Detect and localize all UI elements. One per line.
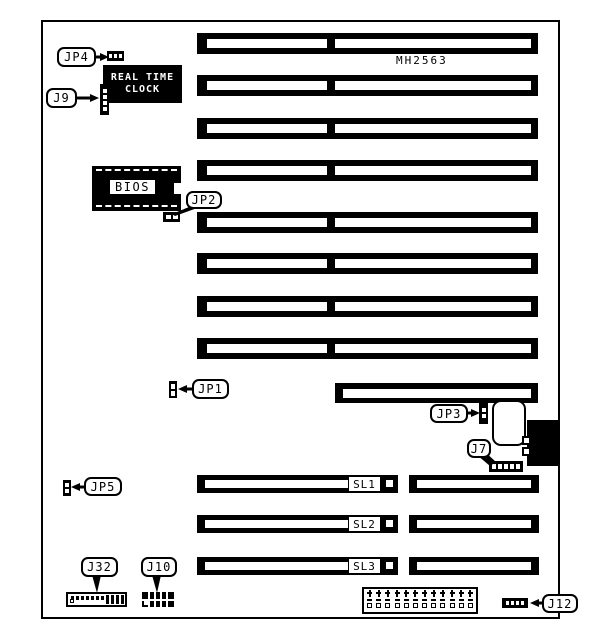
power-pin-socket	[422, 603, 427, 608]
power-pin-socket	[468, 603, 473, 608]
pin1-marker	[70, 599, 74, 603]
power-pin	[413, 590, 418, 597]
pin	[91, 596, 94, 600]
pin	[516, 601, 519, 605]
power-pin-socket	[367, 603, 372, 608]
callout-jp1: JP1	[192, 379, 229, 399]
power-pin-socket	[450, 603, 455, 608]
power-pin-socket	[404, 603, 409, 608]
pin	[103, 107, 107, 111]
slot-contact-right	[335, 81, 531, 90]
bios-chip-notch	[174, 183, 181, 194]
slot-contact-right	[335, 344, 531, 353]
slot-contact-right	[335, 259, 531, 268]
pin	[101, 596, 104, 600]
jp4-jumper	[107, 51, 124, 61]
power-pin	[440, 590, 445, 597]
slot-contact-left	[207, 218, 327, 227]
bios-chip: BIOS	[92, 166, 181, 211]
rtc-label-line2: CLOCK	[125, 84, 160, 96]
isa-slot-8	[197, 338, 538, 359]
pin-bar	[121, 595, 124, 604]
slot-contact-left	[207, 81, 327, 90]
slot-sl1-left: SL1	[197, 475, 398, 493]
pin	[103, 89, 107, 93]
slot-contact-left	[207, 344, 327, 353]
callout-j9: J9	[46, 88, 77, 108]
slot-contact-left	[207, 259, 327, 268]
pin	[492, 464, 496, 469]
power-pin	[459, 590, 464, 597]
slot-key-square	[386, 520, 393, 527]
power-pin-dash	[404, 599, 409, 601]
pin	[76, 596, 79, 600]
pin	[81, 596, 84, 600]
power-pin	[367, 590, 372, 597]
power-connector	[362, 587, 478, 614]
power-pin-socket	[440, 603, 445, 608]
pin	[498, 464, 502, 469]
power-pin-dash	[385, 599, 390, 601]
pin	[506, 601, 509, 605]
rtc-label-line1: REAL TIME	[111, 72, 174, 84]
isa-slot-7	[197, 296, 538, 317]
pin	[482, 408, 486, 412]
slot-contact-right	[335, 218, 531, 227]
callout-j7: J7	[467, 439, 491, 458]
isa-slot-5	[197, 212, 538, 233]
power-pin	[385, 590, 390, 597]
j7-header	[489, 461, 523, 472]
j10-header	[142, 592, 174, 607]
power-pin-dash	[422, 599, 427, 601]
keyboard-connector-pin-bottom	[522, 447, 531, 456]
slot-contact-right	[335, 302, 531, 311]
power-pin-dash	[395, 599, 400, 601]
power-pin	[431, 590, 436, 597]
bios-socket-dash-bottom	[96, 205, 177, 207]
power-pin	[422, 590, 427, 597]
slot-contact	[343, 389, 531, 398]
callout-j10: J10	[141, 557, 177, 577]
power-pin-socket	[431, 603, 436, 608]
power-pin	[376, 590, 381, 597]
power-pin	[450, 590, 455, 597]
pin-bar	[106, 595, 109, 604]
pin	[482, 414, 486, 418]
isa-slot-3	[197, 118, 538, 139]
jp5-jumper	[63, 480, 71, 496]
slot-key-square	[386, 480, 393, 487]
keyboard-connector	[527, 420, 560, 466]
power-pin-dash	[459, 599, 464, 601]
isa-slot-6	[197, 253, 538, 274]
jp1-jumper	[169, 381, 177, 398]
power-pin	[395, 590, 400, 597]
pin	[516, 464, 520, 469]
callout-jp5: JP5	[84, 477, 122, 496]
power-pin-dash	[376, 599, 381, 601]
pin	[103, 101, 107, 105]
callout-jp3: JP3	[430, 404, 468, 423]
slot-contact	[417, 562, 531, 570]
power-pin-socket	[459, 603, 464, 608]
pin-bar	[111, 595, 114, 604]
power-pin	[404, 590, 409, 597]
power-pin-socket	[385, 603, 390, 608]
j9-header	[100, 84, 109, 115]
power-pin-socket	[376, 603, 381, 608]
pin	[109, 54, 112, 58]
pin	[65, 483, 69, 487]
power-pin-dash	[413, 599, 418, 601]
slot-label-sl3: SL3	[348, 558, 381, 574]
power-pin-dash	[450, 599, 455, 601]
callout-j32: J32	[81, 557, 118, 577]
pin	[103, 95, 107, 99]
slot-contact	[417, 480, 531, 488]
callout-jp2: JP2	[186, 191, 222, 209]
callout-j12: J12	[542, 594, 578, 613]
pin	[65, 489, 69, 493]
pin	[114, 54, 117, 58]
pin	[173, 215, 178, 219]
slot-key-square	[386, 562, 393, 569]
slot-sl1-right	[409, 475, 539, 493]
pin	[510, 464, 514, 469]
isa-slot-4	[197, 160, 538, 181]
power-pin-dash	[431, 599, 436, 601]
j12-header	[502, 598, 528, 608]
slot-contact-left	[207, 124, 327, 133]
slot-contact-left	[207, 302, 327, 311]
real-time-clock-chip: REAL TIME CLOCK	[103, 65, 182, 103]
slot-sl2-left: SL2	[197, 515, 398, 533]
slot-contact-left	[207, 166, 327, 175]
power-pin	[468, 590, 473, 597]
slot-contact	[417, 520, 531, 528]
slot-contact	[205, 480, 349, 488]
pin	[171, 391, 175, 396]
power-pin-socket	[395, 603, 400, 608]
keyboard-connector-pin-top	[522, 436, 531, 445]
pin	[511, 601, 514, 605]
pin1-marker	[144, 601, 148, 605]
jp3-jumper	[479, 402, 488, 424]
power-pin-dash	[468, 599, 473, 601]
slot-contact-right	[335, 39, 531, 48]
bios-label: BIOS	[109, 179, 156, 195]
battery	[492, 400, 526, 446]
bios-socket-dash-top	[96, 169, 177, 171]
callout-jp4: JP4	[57, 47, 96, 67]
slot-contact-right	[335, 124, 531, 133]
isa-slot-1	[197, 33, 538, 54]
slot-sl2-right	[409, 515, 539, 533]
slot-sl3-left: SL3	[197, 557, 398, 575]
pin-bar	[116, 595, 119, 604]
slot-label-sl2: SL2	[348, 516, 381, 532]
isa-slot-2	[197, 75, 538, 96]
power-pin-socket	[413, 603, 418, 608]
slot-contact-left	[207, 39, 327, 48]
slot-contact	[205, 520, 349, 528]
slot-contact-right	[335, 166, 531, 175]
pin	[504, 464, 508, 469]
pin	[86, 596, 89, 600]
pin	[166, 215, 171, 219]
pin	[119, 54, 122, 58]
jp2-jumper	[163, 212, 180, 222]
power-pin-dash	[367, 599, 372, 601]
slot-sl3-right	[409, 557, 539, 575]
part-number-label: MH2563	[396, 54, 448, 67]
slot-label-sl1: SL1	[348, 476, 381, 492]
j32-header	[66, 592, 127, 607]
pin	[96, 596, 99, 600]
power-pin-dash	[440, 599, 445, 601]
pin	[521, 601, 524, 605]
pin	[171, 384, 175, 389]
slot-contact	[205, 562, 349, 570]
motherboard-diagram: MH2563 REAL TIME CLOCK BIOS SL1 SL2 SL3	[0, 0, 613, 642]
